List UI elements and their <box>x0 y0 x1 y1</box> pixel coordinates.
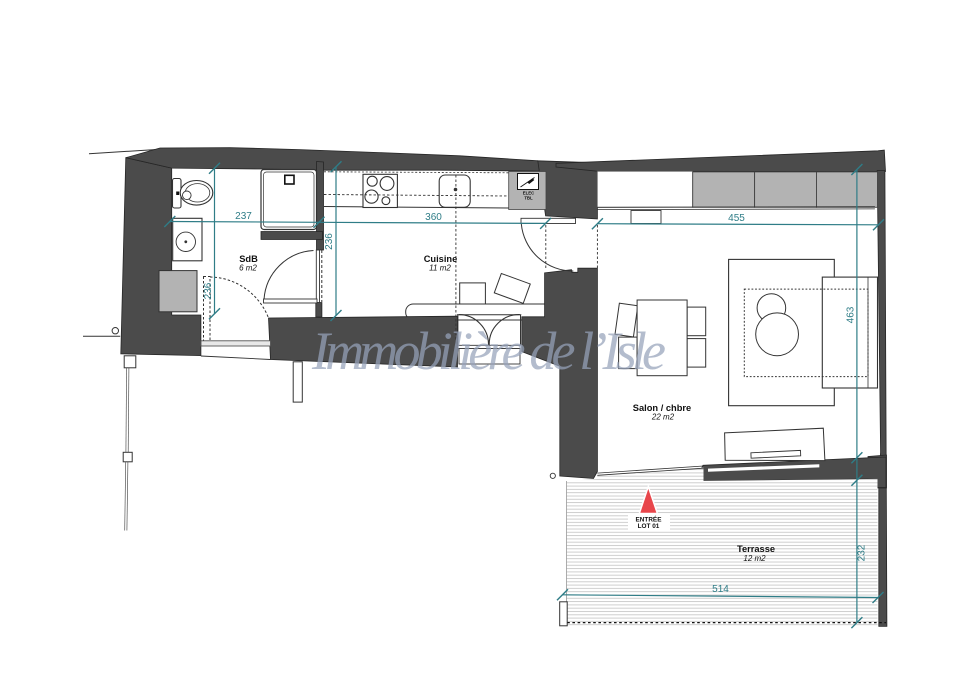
svg-text:12 m2: 12 m2 <box>743 554 766 563</box>
svg-text:237: 237 <box>235 211 252 222</box>
svg-text:Salon / chbre: Salon / chbre <box>633 403 691 413</box>
svg-text:236: 236 <box>203 282 214 299</box>
svg-text:11 m2: 11 m2 <box>429 264 451 273</box>
svg-text:6 m2: 6 m2 <box>239 264 257 273</box>
svg-text:SdB: SdB <box>239 254 258 264</box>
svg-text:Cuisine: Cuisine <box>424 254 458 264</box>
svg-text:ENTRÉE: ENTRÉE <box>636 515 663 524</box>
svg-text:236: 236 <box>324 233 335 250</box>
svg-text:Immobilière de l’Isle: Immobilière de l’Isle <box>311 321 666 381</box>
svg-text:514: 514 <box>712 584 729 595</box>
svg-text:TBL: TBL <box>524 195 533 200</box>
svg-text:22 m2: 22 m2 <box>651 413 675 422</box>
svg-text:232: 232 <box>857 544 868 561</box>
svg-text:463: 463 <box>846 306 857 323</box>
svg-text:455: 455 <box>728 213 745 224</box>
svg-text:LOT 01: LOT 01 <box>638 523 660 530</box>
svg-text:360: 360 <box>425 212 442 223</box>
svg-text:Terrasse: Terrasse <box>737 544 775 554</box>
